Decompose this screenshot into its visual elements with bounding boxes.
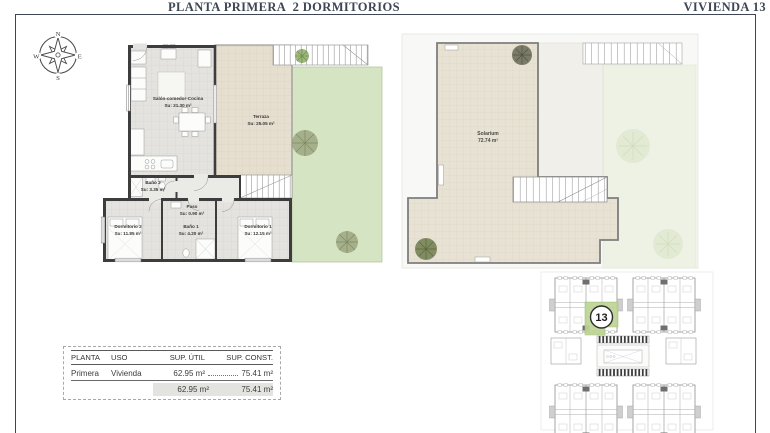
areas-table-header: PLANTA USO SUP. ÚTIL SUP. CONST. (71, 350, 273, 365)
solarium-label: Solarium (477, 131, 499, 137)
compass-south-label: S (56, 75, 60, 82)
key-plan: 13 (533, 268, 770, 433)
header-sup-const: SUP. CONST. (205, 353, 273, 362)
totals-separator (71, 380, 273, 381)
compass-north-label: N (56, 31, 61, 38)
total-sup-util: 62.95 m² (153, 385, 209, 394)
bath2-label: Baño 2 (145, 180, 161, 185)
terrace-label: Terraza (253, 114, 269, 119)
building-block (628, 384, 701, 433)
pool-icon (597, 336, 649, 376)
unit-number: 13 (595, 312, 607, 324)
solarium-area: 72.74 m² (478, 138, 498, 144)
frame-top-line (15, 14, 756, 15)
building-block (550, 384, 623, 433)
building-block (628, 277, 701, 333)
garden-area (292, 67, 382, 262)
totals-row: 62.95 m² 75.41 m² (71, 383, 273, 396)
compass-west-label: W (33, 53, 40, 60)
header-sup-util: SUP. ÚTIL (153, 353, 205, 362)
unit-title: VIVIENDA 13 (683, 0, 766, 15)
dotted-leader (208, 369, 238, 376)
stairs-top-icon (273, 45, 368, 65)
hall-area: Su: 0.90 m² (180, 211, 205, 216)
areas-table: PLANTA USO SUP. ÚTIL SUP. CONST. Primera… (63, 346, 281, 400)
terrace-area: Su: 25.05 m² (247, 121, 275, 126)
stairs-top-right-icon (583, 43, 682, 64)
plan-sheet: PLANTA PRIMERA 2 DORMITORIOS VIVIENDA 13… (0, 0, 770, 433)
cell-sup-const: 75.41 m² (241, 369, 273, 378)
header-planta: PLANTA (71, 353, 111, 362)
table-row: Primera Vivienda 62.95 m² 75.41 m² (71, 365, 273, 380)
cell-uso: Vivienda (111, 369, 153, 378)
frame-left-line (15, 14, 16, 433)
page-title: PLANTA PRIMERA 2 DORMITORIOS (168, 0, 400, 15)
cell-planta: Primera (71, 369, 111, 378)
hall-label: Paso (187, 204, 198, 209)
bedroom2-label: Dormitorio 2 (114, 224, 142, 229)
header-uso: USO (111, 353, 153, 362)
solarium-plan: Solarium 72.74 m² (400, 28, 715, 273)
bath1-area: Su: 4.20 m² (179, 231, 204, 236)
bedroom1-area: Su: 12.15 m² (244, 231, 272, 236)
bedroom2-area: Su: 11.85 m² (115, 231, 142, 236)
living-area: Su: 31.30 m² (164, 103, 192, 108)
stairs-mid-icon (240, 175, 292, 198)
bedroom1-label: Dormitorio 1 (244, 224, 272, 229)
floor-plan: Salón-comedor-Cocina Su: 31.30 m² Terraz… (95, 25, 395, 275)
bath2-area: Su: 3.35 m² (141, 187, 166, 192)
cell-sup-util: 62.95 m² (153, 369, 205, 378)
bath1-label: Baño 1 (183, 224, 199, 229)
total-sup-const: 75.41 m² (209, 385, 273, 394)
living-label: Salón-comedor-Cocina (153, 96, 204, 101)
stairs-solarium-icon (513, 177, 607, 202)
compass-east-label: E (78, 53, 82, 60)
compass-rose-icon: N E S W (30, 27, 86, 83)
